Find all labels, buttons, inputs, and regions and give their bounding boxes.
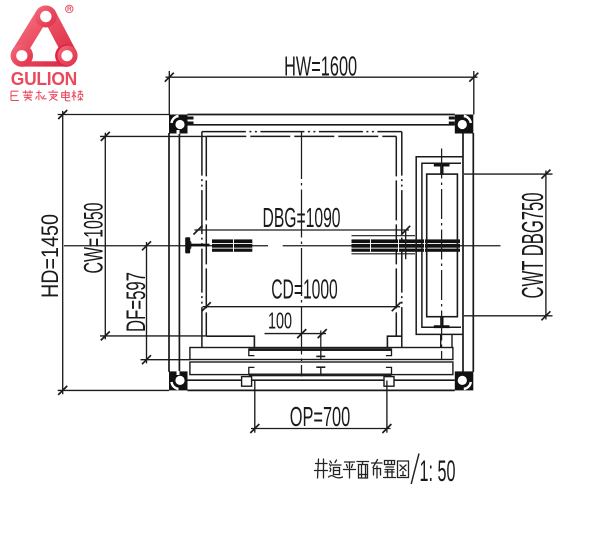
svg-text:R: R: [67, 6, 72, 13]
svg-text:OP=700: OP=700: [290, 400, 351, 432]
svg-text:CW=1050: CW=1050: [78, 203, 108, 274]
svg-text:100: 100: [268, 308, 292, 335]
svg-text:1: 50: 1: 50: [420, 455, 456, 489]
svg-text:HD=1450: HD=1450: [36, 214, 63, 298]
svg-text:GULION: GULION: [11, 69, 77, 89]
svg-text:CD=1000: CD=1000: [271, 272, 338, 304]
svg-text:HW=1600: HW=1600: [284, 50, 357, 82]
svg-text:CWT DBG750: CWT DBG750: [516, 192, 551, 298]
svg-text:DF=597: DF=597: [121, 272, 151, 332]
svg-text:DBG=1090: DBG=1090: [262, 201, 340, 233]
